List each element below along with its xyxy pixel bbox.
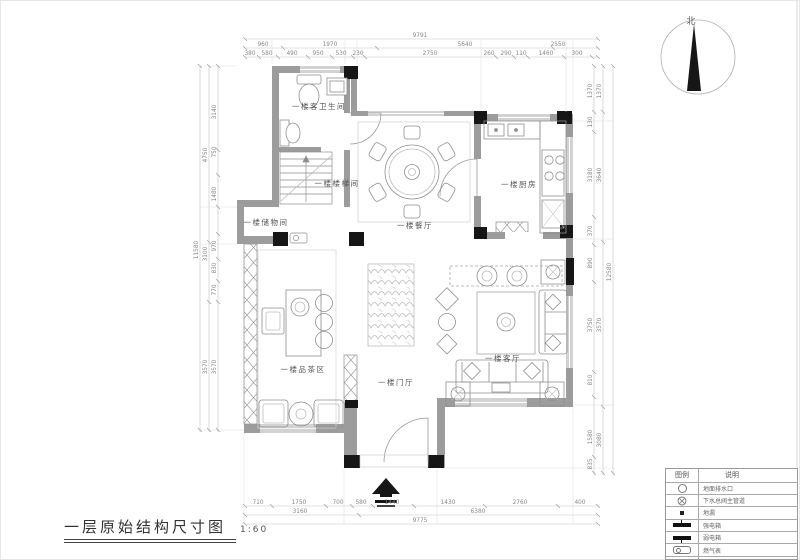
- svg-text:1480: 1480: [212, 186, 218, 201]
- strong-power-box-icon: [673, 523, 691, 527]
- dimensions-left: 3140 750 1480 970 830 770 3570 4750 3100…: [194, 104, 218, 374]
- room-label-kitchen: 一楼厨房: [501, 179, 537, 189]
- title-underline: [64, 539, 236, 540]
- drawing-title: 一层原始结构尺寸图: [64, 516, 226, 537]
- svg-text:830: 830: [212, 262, 218, 273]
- svg-text:3750: 3750: [588, 317, 594, 332]
- svg-text:110: 110: [515, 51, 526, 57]
- legend-col-symbol: 图例: [666, 469, 699, 482]
- svg-text:1440: 1440: [385, 500, 400, 506]
- legend-table: 图例 说明 地面排水口 下水总阀主管道 地漏 强电箱 弱电箱 燃气表 墙: [665, 468, 798, 560]
- dimensions-top: 9791 960 1970 5640 2550 380 580 490 950 …: [244, 33, 582, 57]
- svg-text:3080: 3080: [597, 432, 603, 447]
- svg-text:9775: 9775: [413, 518, 428, 524]
- svg-text:530: 530: [335, 51, 346, 57]
- svg-text:260: 260: [483, 51, 494, 57]
- room-label-tea-area: 一楼品茶区: [281, 364, 326, 374]
- svg-text:970: 970: [212, 240, 218, 251]
- svg-text:960: 960: [257, 42, 268, 48]
- drawing-title-block: 一层原始结构尺寸图1:60: [64, 516, 268, 543]
- room-label-stairwell: 一楼楼梯间: [315, 178, 360, 188]
- svg-text:1430: 1430: [441, 500, 456, 506]
- svg-text:3100: 3100: [203, 246, 209, 261]
- svg-text:580: 580: [261, 51, 272, 57]
- dimensions-right: 1370 130 3180 370 890 3750 810 1580 835 …: [588, 83, 613, 469]
- weak-power-box-icon: [673, 536, 691, 540]
- svg-text:490: 490: [286, 51, 297, 57]
- svg-text:3570: 3570: [212, 359, 218, 374]
- svg-text:380: 380: [244, 51, 255, 57]
- svg-text:4750: 4750: [203, 147, 209, 162]
- svg-text:2750: 2750: [423, 51, 438, 57]
- svg-text:835: 835: [588, 458, 594, 469]
- svg-text:1580: 1580: [588, 429, 594, 444]
- living-room-furniture: [436, 260, 567, 406]
- room-label-living: 一楼客厅: [485, 353, 521, 363]
- svg-text:300: 300: [571, 51, 582, 57]
- svg-text:2550: 2550: [551, 42, 566, 48]
- svg-text:2760: 2760: [513, 500, 528, 506]
- svg-text:770: 770: [212, 284, 218, 295]
- title-underline: [64, 542, 236, 543]
- svg-text:1970: 1970: [323, 42, 338, 48]
- legend-row: 弱电箱: [666, 531, 797, 543]
- svg-text:130: 130: [588, 116, 594, 127]
- svg-text:6380: 6380: [471, 509, 486, 515]
- svg-text:890: 890: [588, 257, 594, 268]
- legend-header: 图例 说明: [666, 469, 797, 482]
- floorplan-page: 一楼客卫生间 一楼楼梯间 一楼储物间 一楼餐厅 一楼厨房 一楼品茶区 一楼门厅 …: [0, 0, 800, 560]
- svg-text:580: 580: [355, 500, 366, 506]
- svg-text:1370: 1370: [588, 83, 594, 98]
- dimensions-bottom: 710 1750 700 580 1440 1430 2760 400 3160…: [252, 500, 585, 524]
- legend-row: 下水总阀主管道: [666, 494, 797, 506]
- drain-cross-icon: [677, 496, 687, 506]
- drawing-scale: 1:60: [240, 525, 268, 535]
- north-label: 北: [686, 16, 695, 27]
- compass-needle-icon: [687, 24, 701, 91]
- north-compass: 北: [661, 16, 735, 94]
- legend-row: 强电箱: [666, 519, 797, 531]
- corner-plant-table: [541, 260, 565, 284]
- svg-text:5640: 5640: [458, 42, 473, 48]
- svg-text:400: 400: [574, 500, 585, 506]
- room-label-guest-bathroom: 一楼客卫生间: [292, 101, 346, 111]
- decorative-rug: [368, 264, 414, 346]
- svg-text:3140: 3140: [212, 104, 218, 119]
- drain-circle-icon: [678, 484, 687, 493]
- svg-text:9791: 9791: [413, 33, 428, 39]
- svg-text:710: 710: [252, 500, 263, 506]
- svg-text:11580: 11580: [194, 240, 200, 259]
- svg-text:1460: 1460: [539, 51, 554, 57]
- gas-meter-symbol: [290, 233, 307, 243]
- legend-row: 墙: [666, 556, 797, 560]
- tea-area-furniture: [258, 250, 343, 428]
- dining-table-set: [358, 122, 470, 222]
- svg-text:290: 290: [500, 51, 511, 57]
- svg-text:3570: 3570: [597, 317, 603, 332]
- room-label-dining: 一楼餐厅: [397, 220, 433, 230]
- svg-text:3640: 3640: [597, 167, 603, 182]
- legend-row: 地漏: [666, 506, 797, 518]
- svg-text:750: 750: [212, 146, 218, 157]
- legend-row: 地面排水口: [666, 482, 797, 494]
- svg-text:700: 700: [332, 500, 343, 506]
- floor-drain-icon: [680, 511, 684, 515]
- svg-text:12580: 12580: [607, 262, 613, 281]
- svg-text:950: 950: [312, 51, 323, 57]
- svg-text:370: 370: [588, 225, 594, 236]
- room-label-storage: 一楼储物间: [244, 217, 289, 227]
- svg-text:3160: 3160: [293, 509, 308, 515]
- svg-text:1370: 1370: [597, 83, 603, 98]
- svg-text:1750: 1750: [292, 500, 307, 506]
- legend-row: 燃气表: [666, 543, 797, 555]
- room-label-foyer: 一楼门厅: [378, 377, 414, 387]
- gas-meter-icon: [673, 546, 691, 554]
- svg-text:3180: 3180: [588, 167, 594, 182]
- svg-text:230: 230: [352, 51, 363, 57]
- svg-text:3570: 3570: [203, 359, 209, 374]
- staircase: [280, 152, 332, 204]
- legend-col-desc: 说明: [699, 470, 797, 480]
- kitchen-counters: [484, 121, 566, 233]
- svg-text:810: 810: [588, 374, 594, 385]
